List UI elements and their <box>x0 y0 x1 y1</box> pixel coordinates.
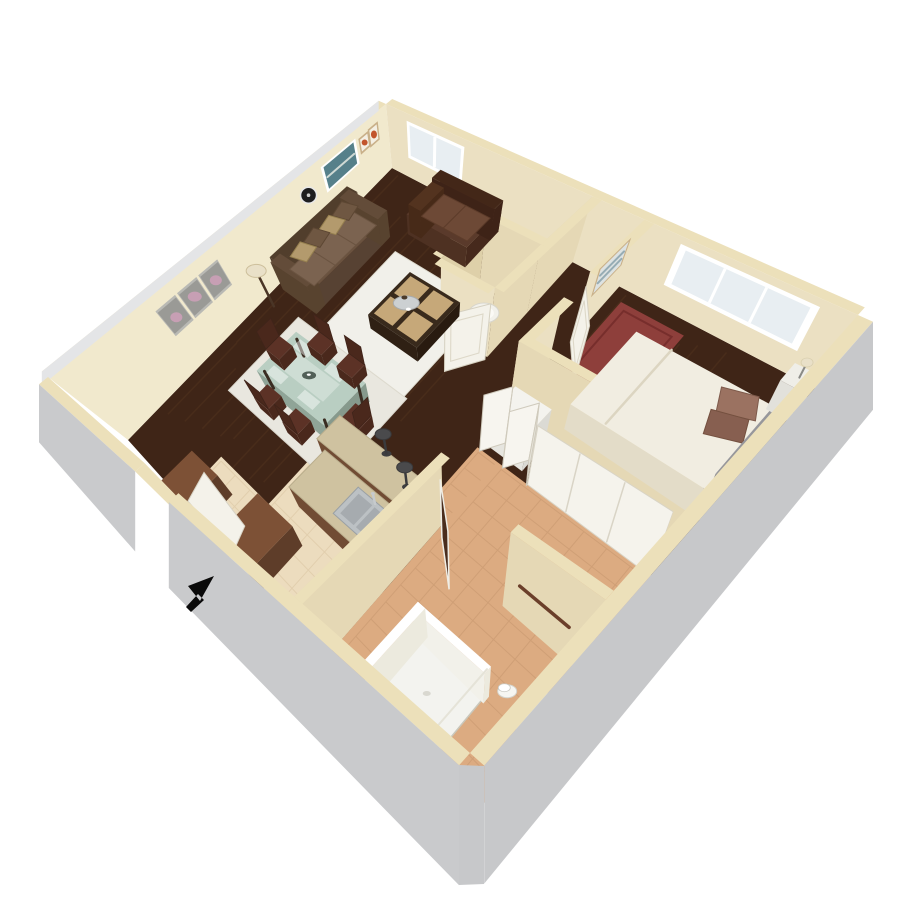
floorplan-render-canvas <box>0 0 900 900</box>
tray-item-cup <box>406 308 411 311</box>
sink-faucet-tip <box>371 492 375 495</box>
stool-2-seat <box>397 462 413 473</box>
nightstand-lamp-shade <box>801 358 813 367</box>
shower-drain <box>423 691 431 696</box>
magnolia-1 <box>210 275 222 285</box>
small-frame-art-1 <box>371 130 377 138</box>
toilet-seat <box>498 684 510 692</box>
floor-lamp-shade <box>246 264 266 277</box>
tray-item-dark <box>401 295 407 299</box>
centerpiece-dot <box>307 373 311 375</box>
wall-clock-center <box>307 193 311 197</box>
small-frame-art-2 <box>362 140 368 146</box>
corner-fill-south <box>459 765 484 885</box>
magnolia-2 <box>188 292 202 302</box>
magnolia-3 <box>170 312 182 322</box>
apartment-3d-floorplan <box>0 0 900 900</box>
stool-1-seat <box>375 429 391 440</box>
